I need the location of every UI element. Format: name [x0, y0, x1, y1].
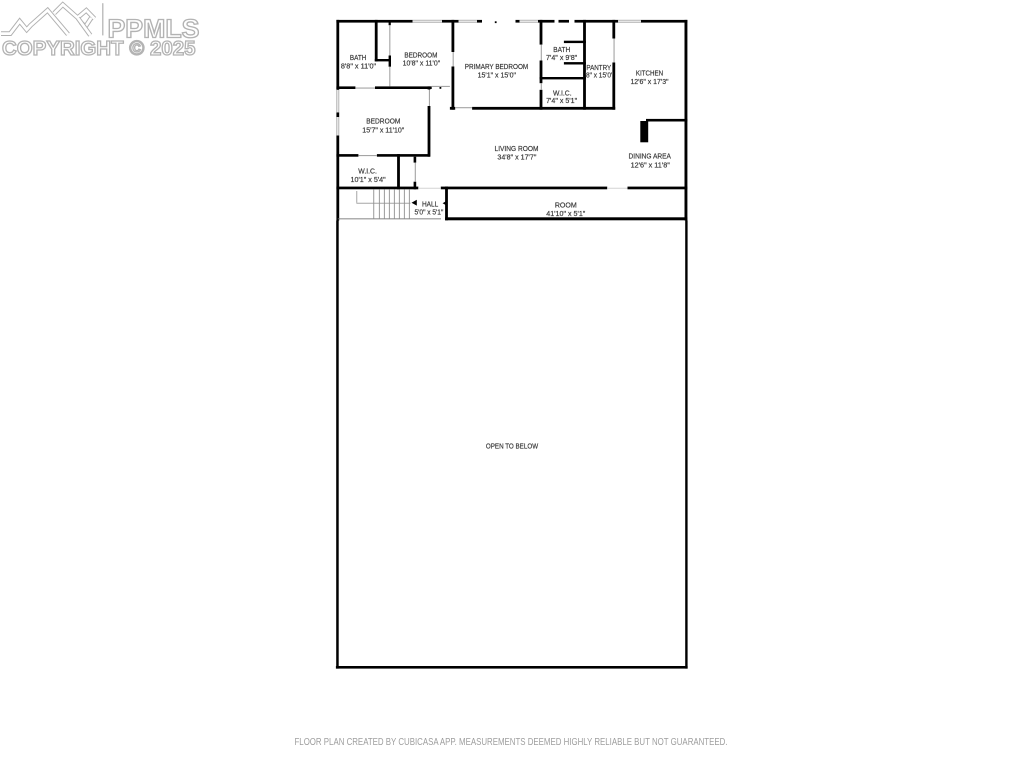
svg-text:DINING AREA: DINING AREA [629, 151, 671, 160]
svg-text:COPYRIGHT © 2025: COPYRIGHT © 2025 [2, 38, 196, 60]
svg-text:12'6" x 11'8": 12'6" x 11'8" [631, 160, 671, 169]
svg-text:5'0" x 5'1": 5'0" x 5'1" [415, 207, 444, 216]
svg-text:10'8" x 11'0": 10'8" x 11'0" [403, 59, 441, 68]
svg-text:15'7" x 11'10": 15'7" x 11'10" [362, 125, 404, 134]
svg-text:41'10" x 5'1": 41'10" x 5'1" [546, 209, 585, 218]
svg-text:34'8" x 17'7": 34'8" x 17'7" [497, 153, 536, 162]
svg-text:'8" x 15'0": '8" x 15'0" [585, 70, 614, 79]
svg-text:8'8" x 11'0": 8'8" x 11'0" [341, 61, 377, 70]
svg-text:BEDROOM: BEDROOM [366, 117, 400, 126]
svg-text:KITCHEN: KITCHEN [636, 69, 663, 78]
svg-text:12'6" x 17'3": 12'6" x 17'3" [630, 77, 668, 86]
svg-text:OPEN TO BELOW: OPEN TO BELOW [486, 442, 538, 451]
svg-text:FLOOR PLAN CREATED BY CUBICASA: FLOOR PLAN CREATED BY CUBICASA APP. MEAS… [295, 737, 728, 748]
svg-text:7'4" x 9'8": 7'4" x 9'8" [546, 53, 578, 62]
svg-text:10'1" x 5'4": 10'1" x 5'4" [351, 175, 387, 184]
svg-text:7'4" x 5'1": 7'4" x 5'1" [546, 96, 577, 105]
svg-text:15'1" x 15'0": 15'1" x 15'0" [478, 71, 517, 80]
